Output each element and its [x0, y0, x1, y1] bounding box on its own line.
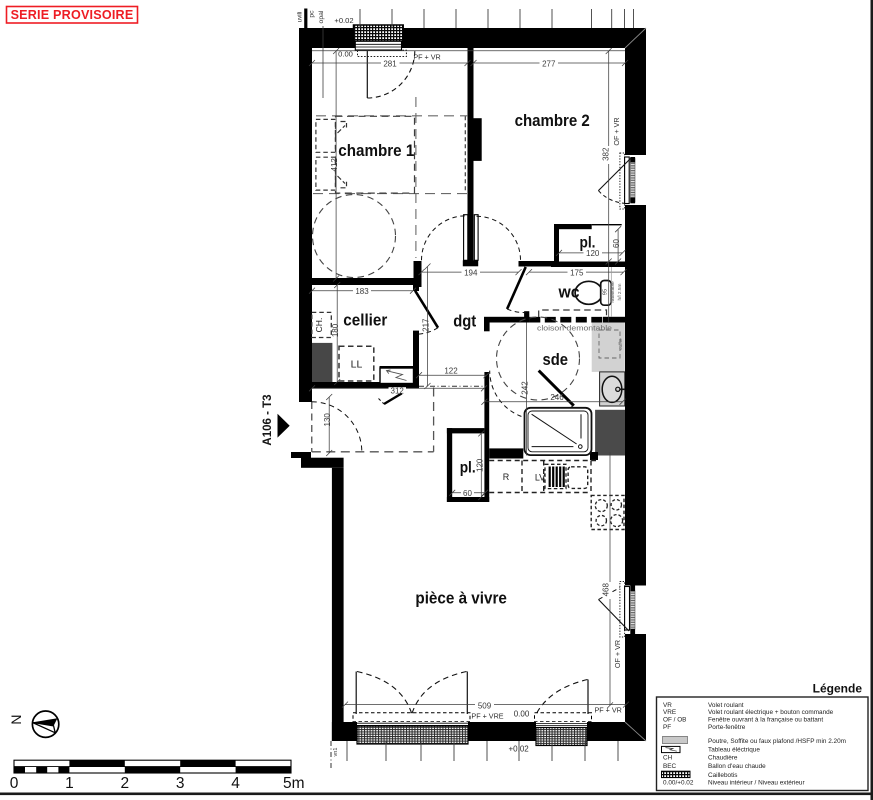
svg-text:wc: wc — [558, 284, 580, 302]
svg-text:Volet roulant électrique + bou: Volet roulant électrique + bouton comman… — [708, 709, 834, 716]
svg-text:chambre 2: chambre 2 — [515, 112, 590, 130]
svg-text:Caillebotis: Caillebotis — [708, 772, 737, 779]
svg-text:PF + VRE: PF + VRE — [471, 711, 503, 720]
svg-text:194: 194 — [464, 269, 478, 278]
svg-text:CH.: CH. — [314, 318, 324, 333]
svg-text:VRE: VRE — [663, 709, 676, 716]
svg-text:509: 509 — [478, 701, 492, 710]
svg-text:Volet roulant: Volet roulant — [708, 702, 744, 709]
svg-text:OF / OB: OF / OB — [663, 717, 686, 724]
svg-text:dgt: dgt — [453, 313, 476, 331]
svg-text:277: 277 — [542, 60, 556, 69]
svg-text:pl.: pl. — [580, 235, 596, 252]
svg-text:OF + VR: OF + VR — [613, 640, 622, 668]
svg-text:120: 120 — [475, 458, 484, 472]
svg-text:h/l 2.5m: h/l 2.5m — [617, 283, 623, 300]
svg-text:Chaudière: Chaudière — [708, 755, 738, 762]
svg-text:Légende: Légende — [813, 682, 863, 696]
svg-text:130: 130 — [323, 413, 332, 427]
svg-text:PF + VR: PF + VR — [413, 53, 440, 62]
svg-text:2: 2 — [120, 775, 129, 792]
svg-text:pl.: pl. — [460, 460, 476, 477]
svg-text:BEC: BEC — [663, 763, 677, 770]
svg-text:R: R — [503, 472, 510, 482]
svg-text:242: 242 — [521, 381, 530, 395]
svg-text:OF + VR: OF + VR — [612, 117, 621, 145]
svg-text:VR: VR — [663, 702, 672, 709]
svg-text:sde: sde — [543, 351, 569, 369]
svg-text:468: 468 — [602, 582, 611, 596]
svg-text:Porte-fenêtre: Porte-fenêtre — [708, 724, 746, 731]
svg-text:175: 175 — [570, 269, 584, 278]
svg-text:281: 281 — [383, 60, 397, 69]
svg-text:A106 - T3: A106 - T3 — [262, 394, 274, 445]
svg-text:1: 1 — [65, 775, 74, 792]
svg-text:cloison demontable: cloison demontable — [537, 323, 612, 332]
svg-text:95: 95 — [603, 289, 609, 295]
svg-text:183: 183 — [355, 287, 369, 296]
svg-text:LV: LV — [535, 473, 545, 483]
svg-text:0: 0 — [10, 775, 19, 792]
svg-text:CH: CH — [663, 755, 673, 762]
svg-text:Fenêtre ouvrant à la française: Fenêtre ouvrant à la française ou battan… — [708, 717, 823, 724]
svg-text:PF + VR: PF + VR — [595, 706, 622, 715]
svg-text:opal: opal — [318, 10, 325, 23]
svg-text:312: 312 — [391, 386, 405, 395]
svg-text:Niveau intérieur / Niveau exté: Niveau intérieur / Niveau extérieur — [708, 780, 805, 787]
svg-text:180: 180 — [331, 323, 340, 337]
svg-text:vn1: vn1 — [333, 748, 339, 757]
svg-text:+0.02: +0.02 — [334, 16, 353, 25]
svg-text:122: 122 — [444, 366, 458, 375]
svg-text:60: 60 — [463, 489, 472, 498]
svg-text:0.00: 0.00 — [338, 50, 353, 59]
svg-text:rabattable: rabattable — [610, 281, 616, 303]
svg-text:uvili: uvili — [297, 12, 304, 23]
svg-text:246: 246 — [550, 393, 564, 402]
svg-text:5m: 5m — [283, 775, 305, 792]
svg-text:Tableau éléctrique: Tableau éléctrique — [708, 747, 760, 754]
svg-text:0.00/+0.02: 0.00/+0.02 — [663, 780, 694, 787]
svg-text:pièce à vivre: pièce à vivre — [415, 589, 507, 607]
svg-text:60: 60 — [612, 239, 621, 248]
svg-text:Ballon d'eau chaude: Ballon d'eau chaude — [708, 763, 766, 770]
svg-text:cellier: cellier — [343, 312, 388, 330]
svg-text:coffre: coffre — [618, 338, 623, 350]
svg-text:pc: pc — [309, 10, 316, 18]
svg-text:PF: PF — [663, 724, 671, 731]
svg-text:4: 4 — [231, 775, 240, 792]
svg-text:SERIE PROVISOIRE: SERIE PROVISOIRE — [11, 8, 134, 22]
svg-text:Poutre, Soffite ou faux plafon: Poutre, Soffite ou faux plafond /HSFP mi… — [708, 738, 846, 745]
svg-text:0.00: 0.00 — [514, 710, 530, 719]
svg-text:3: 3 — [176, 775, 185, 792]
svg-text:217: 217 — [421, 318, 430, 332]
svg-text:chambre 1: chambre 1 — [338, 142, 414, 160]
svg-text:N: N — [8, 714, 24, 724]
svg-text:LL: LL — [351, 359, 363, 371]
svg-text:382: 382 — [602, 147, 611, 161]
